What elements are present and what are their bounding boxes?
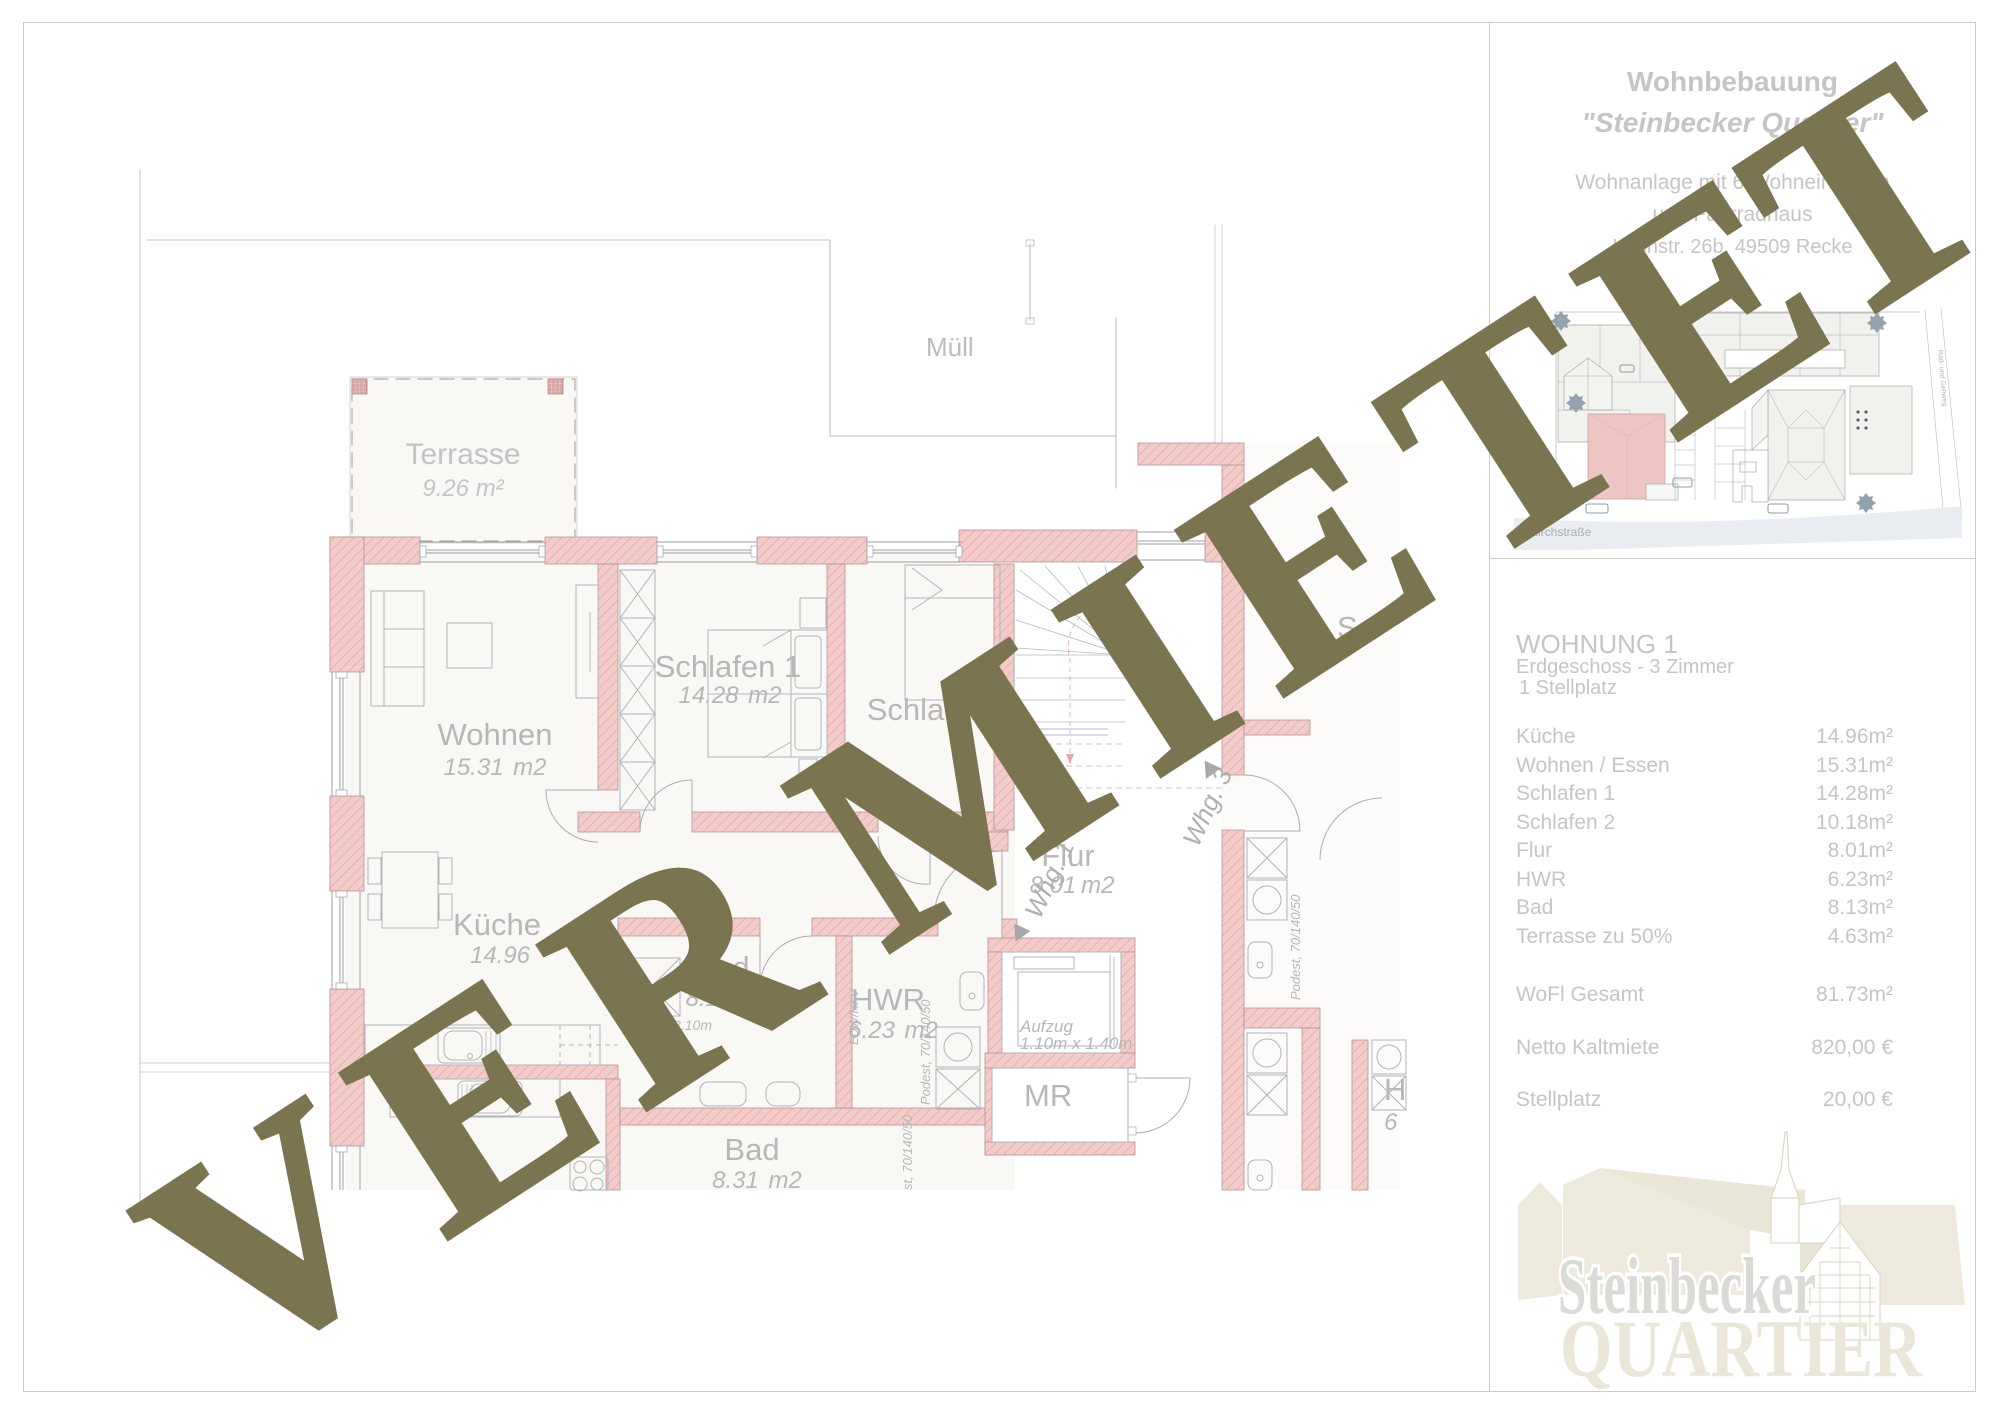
svg-text:VERMIETET: VERMIETET [88, 0, 2000, 1415]
